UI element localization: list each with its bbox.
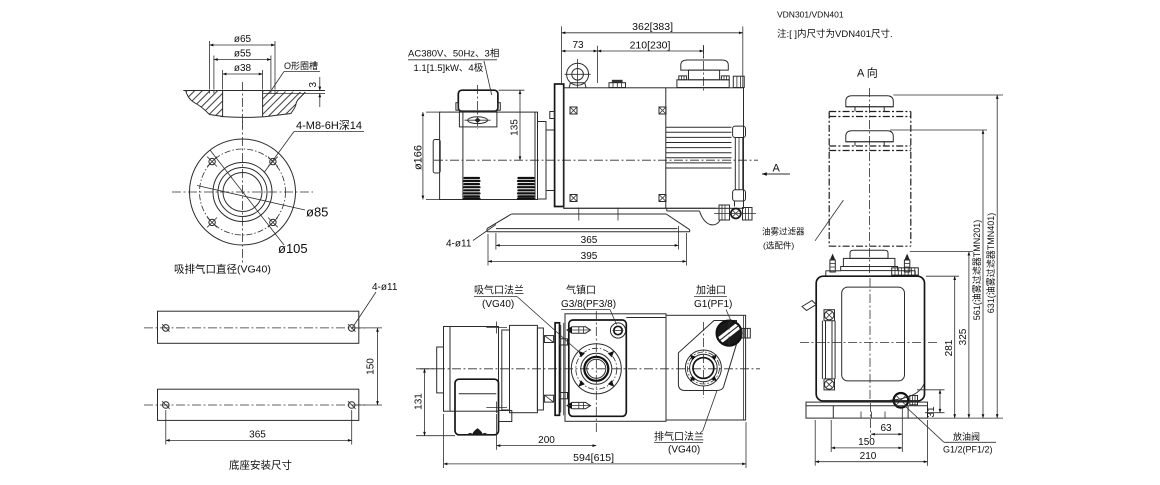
svg-text:(选配件): (选配件): [763, 241, 794, 251]
svg-text:G1(PF1): G1(PF1): [694, 299, 732, 310]
svg-text:油雾过滤器: 油雾过滤器: [762, 227, 805, 237]
svg-text:3: 3: [308, 82, 319, 88]
svg-text:135: 135: [510, 119, 521, 136]
svg-text:底座安装尺寸: 底座安装尺寸: [229, 459, 292, 472]
svg-text:吸排气口直径(VG40): 吸排气口直径(VG40): [174, 263, 271, 276]
svg-text:150: 150: [858, 437, 875, 448]
svg-text:放油阀: 放油阀: [953, 431, 980, 442]
svg-text:A 向: A 向: [857, 66, 878, 80]
svg-text:594[615]: 594[615]: [573, 452, 614, 464]
svg-text:365: 365: [249, 430, 266, 441]
svg-text:ø105: ø105: [278, 241, 308, 256]
svg-text:73: 73: [572, 40, 584, 51]
svg-text:631(油雾过滤器TMN401): 631(油雾过滤器TMN401): [985, 213, 996, 314]
svg-text:395: 395: [581, 251, 598, 262]
svg-text:G1/2(PF1/2): G1/2(PF1/2): [943, 445, 993, 455]
svg-text:4-ø11: 4-ø11: [446, 239, 472, 250]
svg-text:ø55: ø55: [234, 49, 252, 60]
svg-text:1.1[1.5]kW、4极: 1.1[1.5]kW、4极: [414, 62, 484, 74]
svg-text:ø85: ø85: [306, 205, 328, 220]
svg-text:4-ø11: 4-ø11: [372, 282, 398, 293]
svg-text:ø166: ø166: [413, 145, 425, 170]
svg-text:63: 63: [880, 423, 892, 434]
svg-text:VDN301/VDN401: VDN301/VDN401: [777, 10, 844, 20]
svg-text:气镇口: 气镇口: [566, 284, 596, 297]
svg-text:31: 31: [926, 406, 937, 418]
svg-text:加油口: 加油口: [696, 284, 726, 297]
svg-text:A: A: [773, 163, 781, 175]
svg-text:(VG40): (VG40): [668, 445, 700, 456]
svg-text:150: 150: [366, 358, 377, 375]
svg-text:(VG40): (VG40): [482, 299, 514, 310]
svg-text:注:[ ]内尺寸为VDN401尺寸.: 注:[ ]内尺寸为VDN401尺寸.: [777, 28, 893, 40]
svg-text:210[230]: 210[230]: [630, 40, 671, 52]
svg-text:ø38: ø38: [234, 63, 252, 74]
svg-text:362[383]: 362[383]: [632, 21, 673, 33]
svg-text:365: 365: [581, 235, 598, 246]
svg-text:281: 281: [944, 339, 955, 356]
svg-text:排气口法兰: 排气口法兰: [654, 430, 704, 443]
svg-text:ø65: ø65: [234, 34, 252, 45]
svg-text:131: 131: [414, 393, 425, 410]
svg-text:325: 325: [958, 328, 969, 345]
svg-text:O形圈槽: O形圈槽: [284, 60, 318, 71]
svg-text:G3/8(PF3/8): G3/8(PF3/8): [561, 299, 616, 310]
svg-text:AC380V、50Hz、3相: AC380V、50Hz、3相: [408, 48, 499, 60]
svg-text:4-M8-6H深14: 4-M8-6H深14: [296, 119, 362, 132]
svg-text:210: 210: [860, 451, 877, 462]
svg-text:561(油雾过滤器TMN201): 561(油雾过滤器TMN201): [971, 220, 982, 321]
svg-text:200: 200: [538, 435, 555, 446]
svg-text:吸气口法兰: 吸气口法兰: [474, 284, 524, 297]
